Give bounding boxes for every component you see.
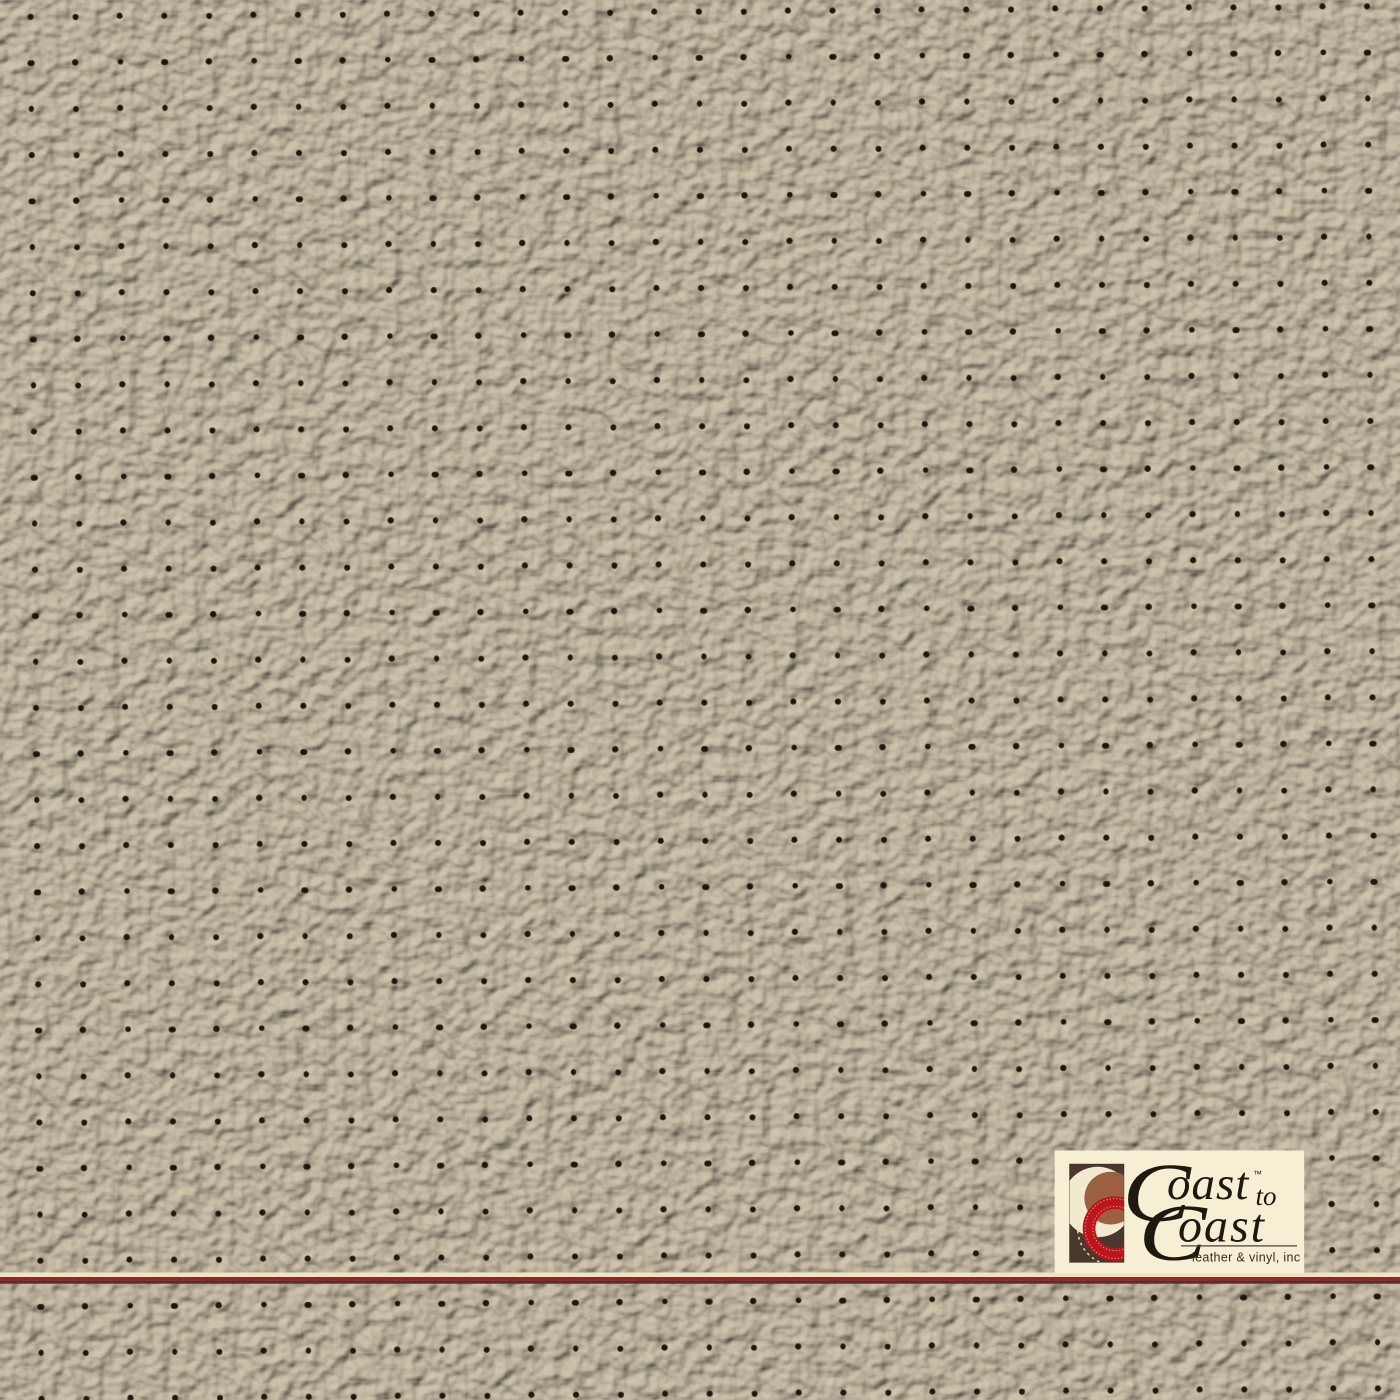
- svg-text:™: ™: [1253, 1169, 1262, 1179]
- svg-text:leather & vinyl, inc: leather & vinyl, inc: [1192, 1251, 1300, 1265]
- svg-text:oast: oast: [1178, 1200, 1266, 1253]
